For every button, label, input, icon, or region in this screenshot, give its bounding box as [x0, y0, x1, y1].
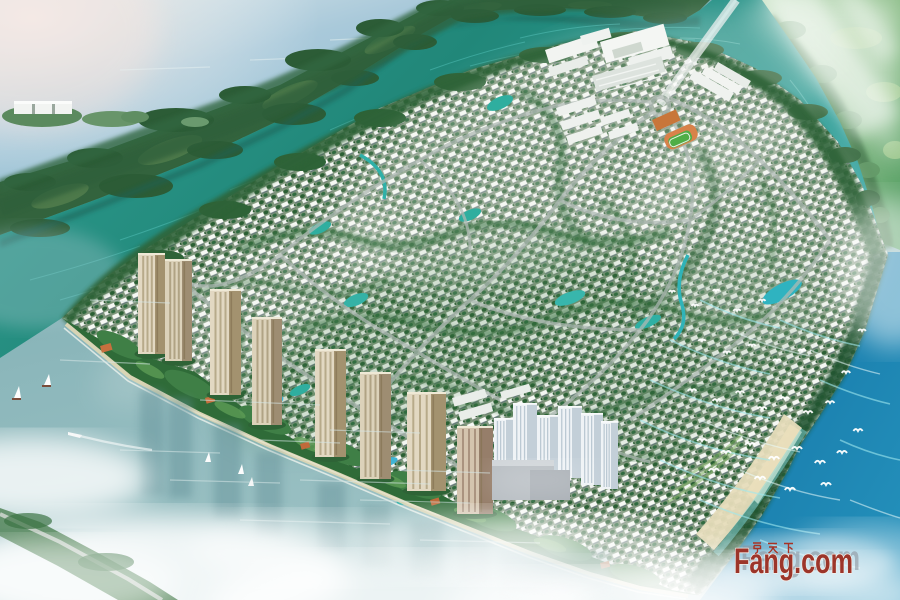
- svg-text:Fang.com: Fang.com: [734, 542, 853, 581]
